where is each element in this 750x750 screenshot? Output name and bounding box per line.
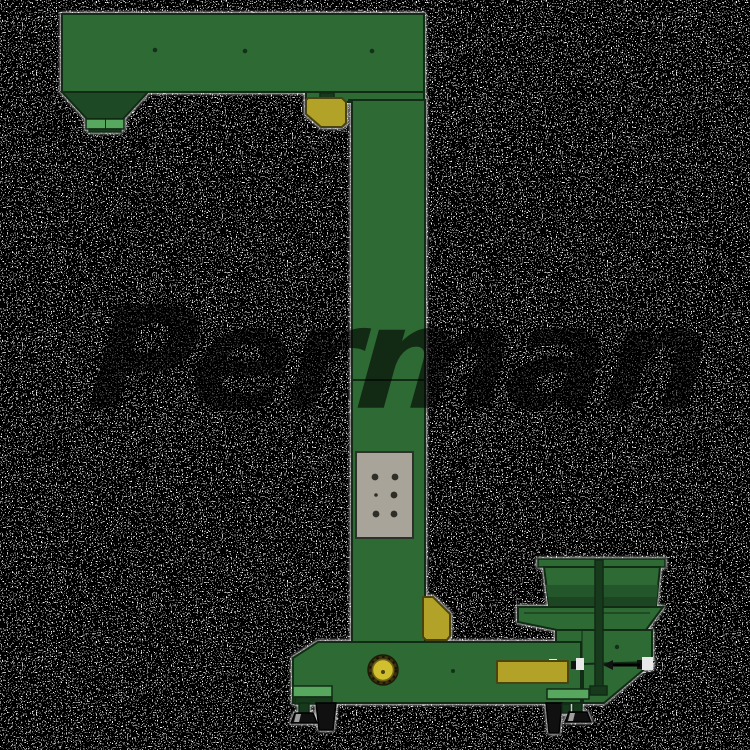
watermark-text: Perman [84,288,695,440]
caster-wheel [546,703,562,733]
access-panel [356,452,413,538]
leveling-foot-stem [573,703,582,712]
caster-wheel [316,703,336,730]
drive-motor [368,655,398,685]
name-plate [497,661,568,683]
product-image-stage: Perman [0,0,750,750]
top-discharge-arm [62,14,424,102]
column-bracket [423,597,450,640]
left-feet [291,686,336,730]
discharge-hopper [62,92,148,132]
leveling-foot-stem [299,703,309,713]
feed-hopper [518,559,665,630]
right-feet [546,689,591,733]
